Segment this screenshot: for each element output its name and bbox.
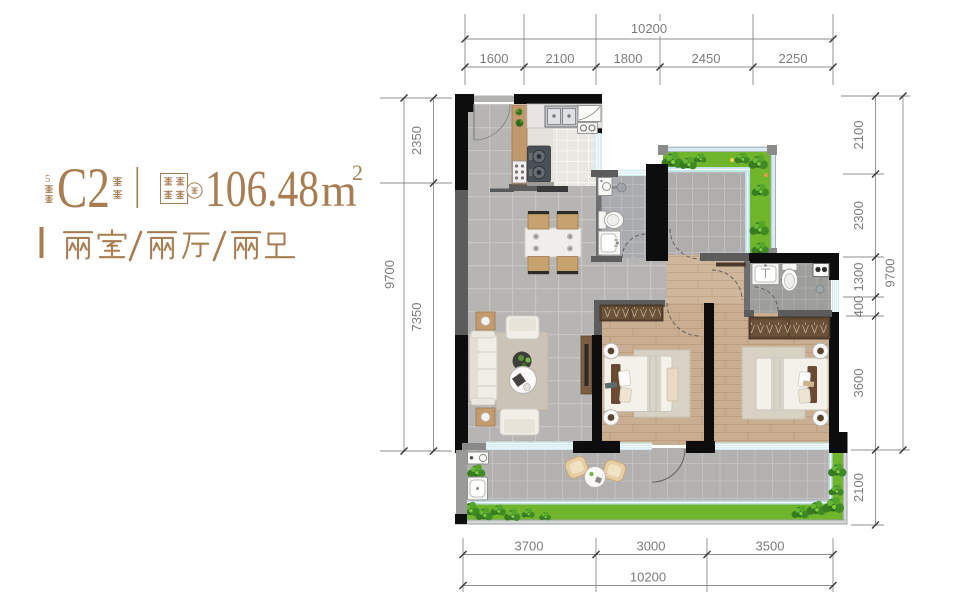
svg-text:5: 5 [45,174,50,185]
svg-text:1300: 1300 [851,263,866,292]
svg-text:2100: 2100 [851,121,866,150]
svg-text:2100: 2100 [546,51,575,66]
svg-text:3700: 3700 [515,539,544,554]
svg-text:7350: 7350 [409,303,424,332]
svg-text:2100: 2100 [851,473,866,502]
svg-text:10200: 10200 [631,21,667,36]
svg-text:9700: 9700 [382,260,397,289]
svg-text:3600: 3600 [851,369,866,398]
svg-text:C2: C2 [57,157,110,220]
svg-text:3500: 3500 [756,539,785,554]
svg-text:2250: 2250 [779,51,808,66]
svg-text:1800: 1800 [614,51,643,66]
svg-text:106.48: 106.48 [205,161,319,218]
svg-text:10200: 10200 [630,570,666,585]
svg-text:400: 400 [851,296,866,318]
svg-text:2300: 2300 [851,201,866,230]
svg-text:2: 2 [352,160,363,185]
svg-text:2450: 2450 [692,51,721,66]
svg-text:3000: 3000 [637,539,666,554]
svg-text:9700: 9700 [883,259,898,288]
svg-text:2350: 2350 [409,126,424,155]
svg-text:1600: 1600 [480,51,509,66]
